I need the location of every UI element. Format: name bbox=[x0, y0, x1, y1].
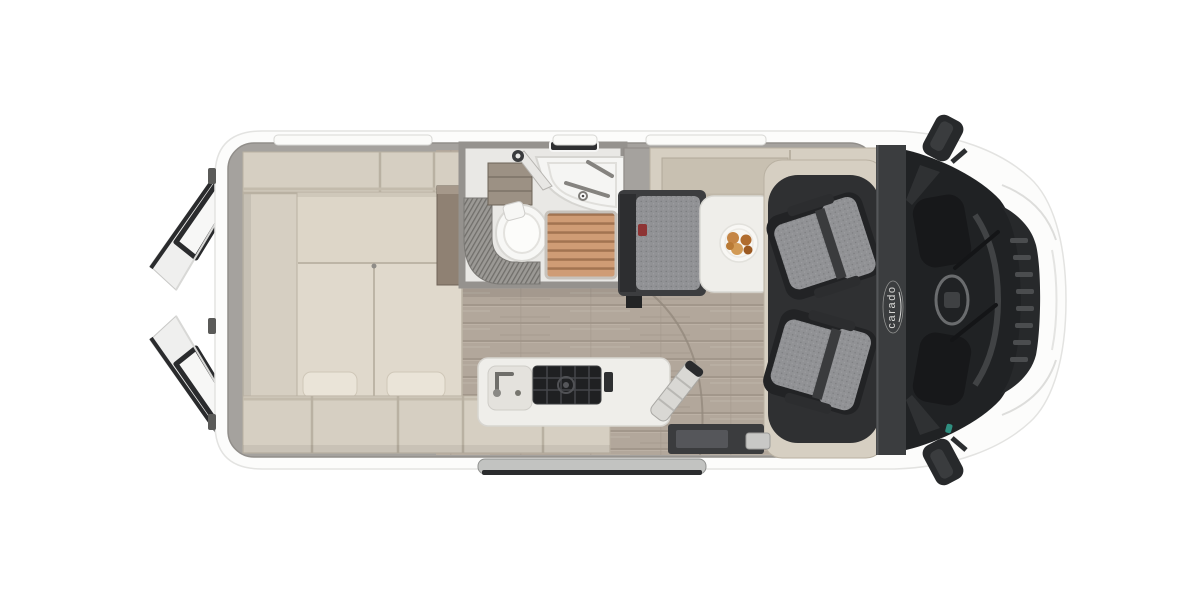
pillow-left bbox=[303, 372, 357, 398]
window-bath bbox=[553, 135, 597, 145]
camper-van-floorplan: carado bbox=[0, 0, 1200, 600]
seatbelt-buckle bbox=[638, 224, 647, 236]
breakfast-plate bbox=[720, 224, 758, 262]
gas-hob bbox=[533, 366, 613, 404]
entry-area bbox=[668, 424, 770, 454]
shower-floor-grate bbox=[546, 212, 616, 278]
bathroom bbox=[462, 141, 624, 285]
window-dinette bbox=[646, 135, 766, 145]
cab-roof-band: carado bbox=[876, 145, 906, 455]
entry-step-exterior bbox=[478, 459, 706, 475]
pillow-right bbox=[387, 372, 445, 398]
brand-logo-text: carado bbox=[886, 285, 898, 328]
kitchen-sink bbox=[488, 366, 532, 410]
cabinet-above-bench bbox=[624, 148, 652, 195]
dinette-table bbox=[700, 196, 774, 292]
floorplan-graphic: carado bbox=[0, 0, 1200, 600]
window-rear bbox=[274, 135, 432, 145]
dinette-bench bbox=[618, 190, 706, 308]
mirror-cabinet bbox=[488, 163, 532, 205]
